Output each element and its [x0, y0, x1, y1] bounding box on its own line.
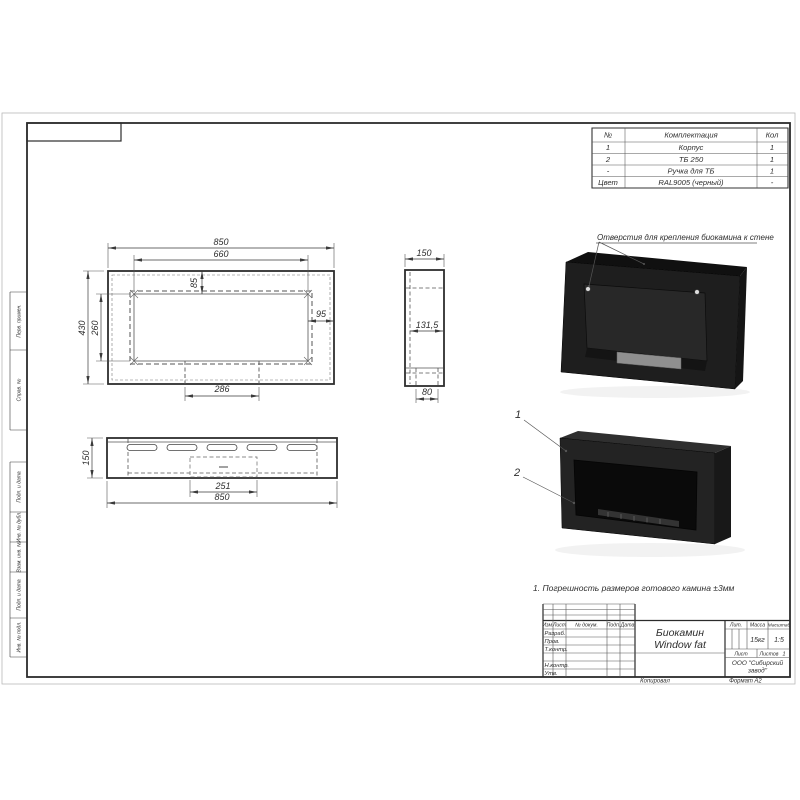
leader-dot [588, 285, 590, 287]
leader-dot [643, 263, 645, 265]
tb-scale-label: Масштаб [768, 623, 791, 629]
vent-slot [287, 445, 317, 451]
vent-slot [167, 445, 197, 451]
mount-hole [586, 287, 591, 292]
margin-label-inv-podl: Инв. № подл. [17, 621, 23, 652]
dim-front-width: 850 [213, 237, 228, 247]
tb-role-prov: Пров. [545, 639, 560, 645]
bottom-vent-slots [127, 445, 317, 451]
leader-dot [565, 450, 567, 452]
tb-mass-label: Масса [750, 623, 765, 629]
tb-sheet-label: Лист [733, 652, 748, 658]
dim-side-depth: 150 [416, 248, 431, 258]
tb-sheets-label: Листов [759, 652, 779, 658]
back-panel [584, 284, 707, 361]
company-name-line1: ООО "Сибирский [732, 659, 784, 667]
tb-col-doc: № докум. [575, 623, 598, 629]
row-qty: 1 [770, 143, 774, 152]
vent-slot [207, 445, 237, 451]
vent-slot [127, 445, 157, 451]
sheet-edge [2, 113, 795, 684]
callout-1: 1 [515, 409, 521, 421]
col-header-qty: Кол [766, 131, 780, 140]
mount-holes-annotation: Отверстия для крепления биокамина к стен… [597, 233, 774, 242]
margin-label-podp1: Подп. и дата [17, 471, 23, 503]
company-name-line2: завод" [747, 667, 768, 675]
row-num: 1 [606, 143, 610, 152]
margin-label-perv: Перв. примен. [17, 304, 23, 337]
parts-table: № Комплектация Кол 1 Корпус 1 2 ТБ 250 1… [592, 128, 788, 188]
row-num: Цвет [598, 178, 618, 187]
col-header-name: Комплектация [664, 131, 717, 140]
tb-sheets-value: 1 [782, 652, 785, 658]
tb-col-sign: Подп. [607, 623, 621, 629]
copied-label: Копировал [640, 679, 670, 685]
front-shadow [555, 543, 745, 557]
doc-name-line1: Биокамин [656, 627, 704, 639]
dim-side-inner: 131,5 [416, 320, 440, 330]
mount-hole [695, 290, 700, 295]
format-label: Формат [729, 679, 753, 685]
dim-side-bottom: 80 [422, 387, 432, 397]
dim-front-top-offset: 85 [189, 277, 199, 288]
dim-front-side-offset: 95 [316, 309, 327, 319]
tb-scale-value: 1:5 [774, 637, 784, 644]
row-name: ТБ 250 [679, 155, 704, 164]
front-outer-contour [108, 271, 334, 384]
tb-role-tkontr: Т.контр. [545, 647, 568, 653]
row-name: Ручка для ТБ [668, 167, 715, 176]
side-view: 150 131,5 80 [405, 248, 444, 403]
dim-bottom-tab: 251 [214, 481, 230, 491]
tb-col-date: Дата [620, 623, 635, 629]
tb-col-list: Лист [552, 623, 567, 629]
tb-role-nkontr: Н.контр. [545, 663, 570, 669]
row-qty: 1 [770, 167, 774, 176]
tb-mass-value: 15кг [750, 637, 765, 644]
callout-2: 2 [513, 467, 520, 479]
format-value: А2 [753, 679, 762, 685]
dim-front-inner-height: 260 [90, 320, 100, 336]
drawing-svg: Перв. примен. Справ. № Подп. и дата Инв.… [0, 0, 800, 800]
margin-label-sprav: Справ. № [17, 378, 23, 401]
row-qty: 1 [770, 155, 774, 164]
vent-slot [247, 445, 277, 451]
leader-dot [573, 502, 575, 504]
tb-lit-label: Лит. [729, 623, 742, 629]
row-name: RAL9005 (черный) [658, 178, 724, 187]
row-name: Корпус [679, 143, 704, 152]
col-header-num: № [604, 131, 612, 140]
bottom-outer-contour [107, 438, 337, 478]
dim-bottom-width: 850 [214, 492, 229, 502]
margin-label-podp2: Подп. и дата [17, 579, 23, 611]
tb-role-razrab: Разраб. [545, 631, 566, 637]
doc-name-line2: Window fat [654, 639, 707, 651]
dim-bottom-depth: 150 [81, 450, 91, 465]
margin-label-inv-dubl: Инв. № дубл. [17, 512, 23, 543]
row-num: 2 [605, 155, 611, 164]
tolerance-note: 1. Погрешность размеров готового камина … [533, 583, 735, 593]
drawing-sheet: Перв. примен. Справ. № Подп. и дата Инв.… [0, 0, 800, 800]
front3d-right-face [715, 446, 731, 544]
dim-front-tab: 286 [213, 384, 229, 394]
dim-front-inner-width: 660 [213, 249, 228, 259]
margin-label-vzam: Взам. инв. № [17, 541, 23, 573]
dim-front-height: 430 [77, 320, 87, 335]
tb-role-utv: Утв. [544, 671, 558, 677]
